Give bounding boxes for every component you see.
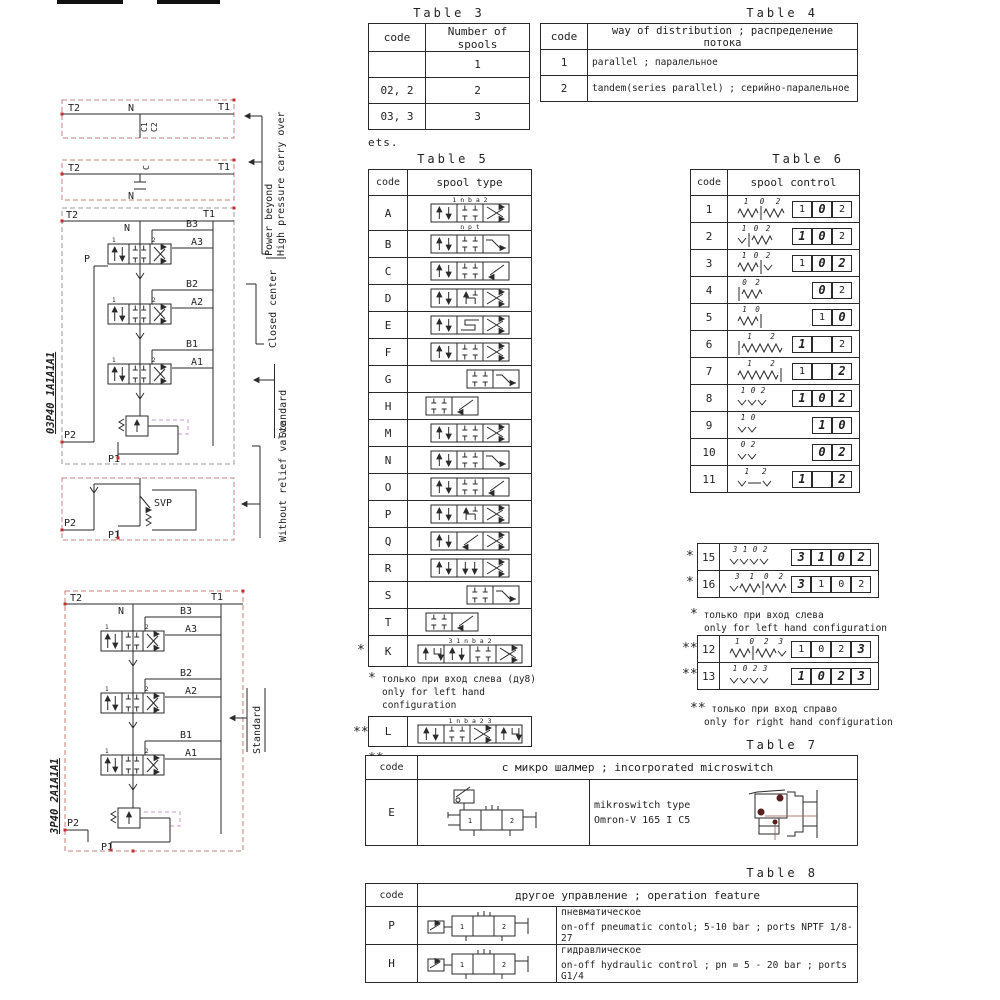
asterisk-marker: * <box>686 575 694 590</box>
position-box: 0 <box>832 309 852 326</box>
spool-control-cell: 102102 <box>728 196 860 223</box>
spool-type-symbol <box>465 367 521 391</box>
table6-row: 1310231023 <box>698 663 879 690</box>
port-label-a: A1 <box>185 748 197 759</box>
cell-code: H <box>366 945 418 983</box>
label-high-pressure-carry-over: High pressure carry over <box>276 112 287 257</box>
port-label-n: N <box>124 223 130 234</box>
cell-code: K <box>369 636 408 667</box>
position-box: 1 <box>792 471 812 488</box>
spool-symbol-cell <box>408 339 532 366</box>
table5-row: R <box>369 555 532 582</box>
position-box: 3 <box>851 668 871 685</box>
table-row: 1 parallel ; паралельное <box>541 50 858 76</box>
control-position-label: 2 <box>764 637 769 646</box>
position-boxes: 02 <box>793 444 852 461</box>
operation-ru: пневматическое <box>561 907 853 918</box>
spool-control-cell: 1010 <box>728 412 860 439</box>
spool-symbol-cell <box>408 393 532 420</box>
control-position-label: 0 <box>754 224 759 233</box>
control-position-label: 2 <box>766 224 771 233</box>
table6-extra-block: 12102310231310231023**** <box>697 635 863 690</box>
cell-code: B <box>369 231 408 258</box>
note-ru: только при вход слева (ду8) <box>382 674 536 685</box>
table7-header-desc: с микро шалмер ; incorporated microswitc… <box>418 756 858 780</box>
position-boxes: 1023 <box>791 668 871 685</box>
asterisk-marker: * <box>690 607 698 622</box>
spool-control-symbol: 102 <box>735 223 789 249</box>
table8: code другое управление ; operation featu… <box>365 883 858 983</box>
position-boxes: 02 <box>793 282 852 299</box>
spool-symbol-cell <box>408 285 532 312</box>
control-position-label: 0 <box>754 251 759 260</box>
spool-type-symbol <box>429 286 511 310</box>
catalog-page: T2T1NC1C2T2T1NCT2T1NB3A312B2A212B1A112PP… <box>0 0 1000 1000</box>
table5-header-code: code <box>369 170 408 196</box>
port-label-b: B2 <box>180 668 192 679</box>
spool-control-cell: 1212 <box>728 466 860 493</box>
spool-control-cell: 1010 <box>728 304 860 331</box>
valve-section-label: 1 <box>112 297 116 304</box>
spool-control-cell: 102102 <box>728 385 860 412</box>
spool-control-cell: 31023102 <box>720 544 879 571</box>
valve-cell-label: 2 <box>502 923 506 931</box>
spool-control-symbol: 10 <box>735 304 789 330</box>
cell-code: T <box>369 609 408 636</box>
spool-symbol-cell <box>408 231 532 258</box>
position-boxes: 3102 <box>791 576 871 593</box>
cell-code: 11 <box>691 466 728 493</box>
operation-description: гидравлическое on-off hydraulic control … <box>557 945 858 983</box>
control-position-label: 1 <box>747 332 752 341</box>
valve-section-label: 1 <box>105 748 109 755</box>
cell-value: 3 <box>426 104 530 130</box>
position-box: 0 <box>812 444 832 461</box>
position-boxes: 12 <box>792 336 852 353</box>
table6-header-spool-control: spool control <box>728 170 860 196</box>
cell-code: 9 <box>691 412 728 439</box>
table7: code с микро шалмер ; incorporated micro… <box>365 755 858 846</box>
port-label-c2: C2 <box>150 122 159 132</box>
position-box: 1 <box>792 363 812 380</box>
table4: code way of distribution ; распределение… <box>540 23 858 102</box>
control-position-label: 1 <box>741 413 746 422</box>
table5-row: S <box>369 582 532 609</box>
spool-port-labels: 1 n b a 2 <box>452 196 487 204</box>
table4-container: Table 4 code way of distribution ; распр… <box>540 6 858 102</box>
table5-row: D <box>369 285 532 312</box>
operation-en: on-off pneumatic contol; 5-10 bar ; port… <box>561 922 853 944</box>
spool-control-symbol: 02 <box>735 277 789 303</box>
position-box: 2 <box>832 336 852 353</box>
position-box: 2 <box>832 201 852 218</box>
port-label-t2: T2 <box>70 593 82 604</box>
control-position-label: 1 <box>742 224 747 233</box>
control-position-label: 1 <box>744 197 749 206</box>
position-box: 0 <box>812 255 832 272</box>
table5-row: T <box>369 609 532 636</box>
spool-control-cell: 0202 <box>728 277 860 304</box>
spool-type-symbol <box>424 394 480 418</box>
spool-type-symbol <box>429 556 511 580</box>
spool-type-symbol <box>465 583 521 607</box>
port-label-a: A3 <box>191 237 203 248</box>
microswitch-drawing <box>747 782 853 844</box>
position-box: 1 <box>812 309 832 326</box>
table5-row: P <box>369 501 532 528</box>
port-label-a: A2 <box>185 686 197 697</box>
spool-port-labels: n p t <box>460 223 480 230</box>
position-box: 1 <box>792 228 812 245</box>
control-position-label: 1 <box>743 545 748 554</box>
cell-code: E <box>366 780 418 846</box>
table5-container: Table 5 code spool type A1 n b a 2n p tB… <box>368 152 538 805</box>
position-box: 0 <box>831 576 851 593</box>
control-position-label: 2 <box>770 332 775 341</box>
microswitch-description: mikroswitch type Omron-V 165 I C5 <box>590 780 858 846</box>
cell-code: H <box>369 393 408 420</box>
table6-row: 3102102 <box>691 250 860 277</box>
position-box: 1 <box>811 576 831 593</box>
table6-row: 2102102 <box>691 223 860 250</box>
spool-symbol-cell <box>408 528 532 555</box>
spool-control-cell: 102102 <box>728 223 860 250</box>
spool-control-symbol: 102 <box>735 196 789 222</box>
table5-row: C <box>369 258 532 285</box>
spool-control-symbol: 1023 <box>727 663 781 689</box>
port-label-t1: T1 <box>211 592 223 603</box>
position-box: 0 <box>812 390 832 407</box>
spool-symbol-cell <box>408 366 532 393</box>
table3-footnote: ets. <box>368 136 530 149</box>
spool-control-symbol: 102 <box>735 385 789 411</box>
cell-code: G <box>369 366 408 393</box>
label-power-beyond: Power beyond <box>264 184 275 256</box>
cell-code: 1 <box>541 50 588 76</box>
position-box: 0 <box>811 668 831 685</box>
control-position-label: 0 <box>753 545 758 554</box>
table-row: 03, 3 3 <box>369 104 530 130</box>
spool-type-symbol <box>429 475 511 499</box>
table6-row: 40202 <box>691 277 860 304</box>
position-boxes: 3102 <box>791 549 871 566</box>
position-box <box>812 363 832 380</box>
port-label-a: A1 <box>191 357 203 368</box>
valve-cell-label: 1 <box>467 817 471 825</box>
position-box: 2 <box>832 255 852 272</box>
asterisk-marker: ** <box>682 667 698 682</box>
cell-code: 16 <box>698 571 720 598</box>
control-position-label: 0 <box>741 440 746 449</box>
position-box: 0 <box>832 417 852 434</box>
table-row: 02, 2 2 <box>369 78 530 104</box>
spool-symbol-cell <box>408 420 532 447</box>
asterisk-marker: ** <box>690 701 706 716</box>
cell-code: 5 <box>691 304 728 331</box>
spool-symbol-cell <box>408 582 532 609</box>
note-en: only for left hand configuration <box>368 686 538 712</box>
table4-title: Table 4 <box>540 6 858 20</box>
valve-section-label: 2 <box>145 624 149 631</box>
control-position-label: 3 <box>778 637 784 646</box>
spool-symbol-cell <box>408 312 532 339</box>
position-box: 2 <box>832 228 852 245</box>
control-position-label: 2 <box>753 664 758 673</box>
position-box: 0 <box>811 641 831 658</box>
table3: code Number of spools 1 02, 2 2 03, 3 3 <box>368 23 530 130</box>
table6-row: 1210231023 <box>698 636 879 663</box>
spool-symbol-cell <box>408 447 532 474</box>
port-label-p2: P2 <box>64 430 76 441</box>
spool-symbol-cell <box>408 474 532 501</box>
port-label-n: N <box>128 103 134 114</box>
table5-note-left: * только при вход слева (ду8) only for l… <box>368 672 538 712</box>
position-box: 2 <box>832 363 852 380</box>
operation-ru: гидравлическое <box>561 945 853 956</box>
table5-row: O <box>369 474 532 501</box>
position-box: 2 <box>831 641 851 658</box>
spool-control-symbol: 12 <box>735 466 789 492</box>
table4-header-way: way of distribution ; распределение пото… <box>588 24 858 50</box>
control-position-label: 0 <box>764 572 769 581</box>
valve-cell-label: 1 <box>460 961 464 969</box>
table3-container: Table 3 code Number of spools 1 02, 2 2 … <box>368 6 530 149</box>
port-label-c1: C1 <box>140 122 149 132</box>
port-label-b: B3 <box>180 606 192 617</box>
position-boxes: 1023 <box>791 641 871 658</box>
spool-control-cell: 1212 <box>728 331 860 358</box>
table5-row: F <box>369 339 532 366</box>
cell-code: 02, 2 <box>369 78 426 104</box>
position-boxes: 102 <box>792 390 852 407</box>
port-label-a: A3 <box>185 624 197 635</box>
cell-code: P <box>366 907 418 945</box>
label-closed-center: Closed center <box>268 270 279 348</box>
control-position-label: 3 <box>762 664 768 673</box>
position-box: 2 <box>851 576 871 593</box>
control-position-label: 3 <box>734 572 740 581</box>
spool-type-symbol <box>429 313 511 337</box>
table7-title: Table 7 <box>365 738 858 752</box>
cell-code: 13 <box>698 663 720 690</box>
position-boxes: 102 <box>792 228 852 245</box>
position-box: 3 <box>851 641 871 658</box>
note-ru: только при вход справо <box>711 704 837 715</box>
port-label-b: B3 <box>186 219 198 230</box>
hydraulic-valve-symbol: 12 <box>418 945 557 983</box>
cell-code: 6 <box>691 331 728 358</box>
port-label-t1: T1 <box>218 162 230 173</box>
operation-description: пневматическое on-off pneumatic contol; … <box>557 907 858 945</box>
table5-row: G <box>369 366 532 393</box>
control-position-label: 2 <box>763 545 768 554</box>
cell-code: 10 <box>691 439 728 466</box>
cropped-logo-bar <box>57 0 123 4</box>
table6: code spool control 110210221021023102102… <box>690 169 860 493</box>
valve-section-label: 2 <box>152 357 156 364</box>
table6-extra: 12102310231310231023 <box>697 635 879 690</box>
table6-row: 111212 <box>691 466 860 493</box>
table5-header-spool-type: spool type <box>408 170 532 196</box>
valve-cell-label: 1 <box>460 923 464 931</box>
table8-title: Table 8 <box>365 866 858 880</box>
cell-code <box>369 52 426 78</box>
cell-code: C <box>369 258 408 285</box>
spool-control-symbol: 1023 <box>727 636 791 662</box>
table-row: 2 tandem(series parallel) ; серийно-пара… <box>541 76 858 102</box>
asterisk-marker: * <box>368 671 376 686</box>
port-label-p2: P2 <box>67 818 79 829</box>
spool-type-symbol: 3 1 n b a 2 <box>416 637 524 666</box>
spool-symbol-cell <box>408 555 532 582</box>
table6-row: 61212 <box>691 331 860 358</box>
table5-row: B <box>369 231 532 258</box>
cell-code: 15 <box>698 544 720 571</box>
cell-code: 12 <box>698 636 720 663</box>
table6-title: Table 6 <box>690 152 862 166</box>
spool-type-symbol <box>429 340 511 364</box>
table5: code spool type A1 n b a 2n p tBCDEFGHMN… <box>368 169 532 667</box>
table6-row: 91010 <box>691 412 860 439</box>
valve-section-label: 1 <box>112 357 116 364</box>
table6-note: ** только при вход справоonly for right … <box>690 702 893 729</box>
position-boxes: 102 <box>792 255 852 272</box>
spool-type-symbol <box>429 448 511 472</box>
spool-control-symbol: 12 <box>735 358 789 384</box>
control-position-label: 1 <box>741 386 746 395</box>
control-position-label: 1 <box>735 637 740 646</box>
cell-value: 2 <box>426 78 530 104</box>
control-position-label: 1 <box>750 572 755 581</box>
spool-control-cell: 102102 <box>728 250 860 277</box>
control-position-label: 1 <box>742 251 747 260</box>
pneumatic-valve-symbol: 12 <box>418 907 557 945</box>
table6-header-code: code <box>691 170 728 196</box>
model-number-bottom: 3P40 2A1A1A1 <box>49 758 61 835</box>
control-position-label: 0 <box>751 413 756 422</box>
port-label-p: P <box>84 254 90 265</box>
cell-code: M <box>369 420 408 447</box>
spool-type-symbol <box>424 610 480 634</box>
table4-header-code: code <box>541 24 588 50</box>
table6-container: Table 6 code spool control 1102102210210… <box>690 152 862 493</box>
position-box: 1 <box>791 668 811 685</box>
position-box: 2 <box>851 549 871 566</box>
cell-code: 3 <box>691 250 728 277</box>
table6-note: * только при вход слеваonly for left han… <box>690 608 887 635</box>
table-row: P 12 пневматическое on-off pneumatic con… <box>366 907 858 945</box>
spool-control-symbol: 3102 <box>727 544 781 570</box>
cell-code: 03, 3 <box>369 104 426 130</box>
position-boxes: 12 <box>792 363 852 380</box>
control-position-label: 2 <box>762 467 767 476</box>
position-boxes: 10 <box>812 309 852 326</box>
table3-title: Table 3 <box>368 6 530 20</box>
spool-control-symbol: 102 <box>735 250 789 276</box>
control-position-label: 2 <box>755 278 760 287</box>
asterisk-marker: * <box>686 549 694 564</box>
position-box: 2 <box>831 668 851 685</box>
port-label-b: B2 <box>186 279 198 290</box>
cell-code: N <box>369 447 408 474</box>
spool-control-cell: 1212 <box>728 358 860 385</box>
position-box: 1 <box>792 255 812 272</box>
position-boxes: 10 <box>812 417 852 434</box>
spool-symbol-cell <box>408 609 532 636</box>
cell-value: 1 <box>426 52 530 78</box>
control-position-label: 1 <box>742 305 747 314</box>
cell-code: O <box>369 474 408 501</box>
control-position-label: 0 <box>760 197 765 206</box>
port-label-svp: SVP <box>154 498 172 509</box>
spool-type-symbol <box>429 529 511 553</box>
port-label-b: B1 <box>180 730 192 741</box>
position-box: 2 <box>832 471 852 488</box>
table6-row: 100202 <box>691 439 860 466</box>
position-box: 0 <box>812 282 832 299</box>
spool-type-symbol: 1 n b a 2n p t <box>429 196 511 230</box>
spool-port-labels: 1 n b a 2 3 <box>448 717 491 725</box>
position-box: 1 <box>792 390 812 407</box>
table8-header-code: code <box>366 884 418 907</box>
valve-cell-label: 2 <box>509 817 513 825</box>
spool-port-labels: 3 1 n b a 2 <box>448 637 491 645</box>
spool-type-symbol <box>429 232 511 256</box>
spool-control-symbol: 12 <box>735 331 789 357</box>
note-en: only for left hand configuration <box>690 622 887 635</box>
asterisk-marker: * <box>357 643 365 658</box>
cell-code: E <box>369 312 408 339</box>
spool-control-symbol: 10 <box>735 412 789 438</box>
cell-value: tandem(series parallel) ; серийно-парале… <box>588 76 858 102</box>
cell-code: F <box>369 339 408 366</box>
valve-section-label: 1 <box>105 686 109 693</box>
table3-header-spools: Number of spools <box>426 24 530 52</box>
control-position-label: 0 <box>755 305 760 314</box>
table6-row: 1531023102 <box>698 544 879 571</box>
table3-header-code: code <box>369 24 426 52</box>
port-label-t2: T2 <box>68 163 80 174</box>
spool-control-symbol: 3102 <box>727 571 791 597</box>
valve-section-label: 2 <box>145 686 149 693</box>
control-position-label: 3 <box>732 545 738 554</box>
position-box: 2 <box>832 390 852 407</box>
control-position-label: 2 <box>751 440 756 449</box>
position-box: 3 <box>791 549 811 566</box>
cell-code: 2 <box>691 223 728 250</box>
table7-header-code: code <box>366 756 418 780</box>
position-box: 1 <box>791 641 811 658</box>
spool-symbol-cell <box>408 501 532 528</box>
spool-control-cell: 31023102 <box>720 571 879 598</box>
cropped-logo-bar <box>157 0 220 4</box>
spool-control-cell: 10231023 <box>720 636 879 663</box>
note-en: only for right hand configuration <box>690 716 893 729</box>
table-row: H 12 гидравлическое on-off hydraulic con… <box>366 945 858 983</box>
hydraulic-circuit-diagrams: T2T1NC1C2T2T1NCT2T1NB3A312B2A212B1A112PP… <box>28 86 328 876</box>
table5-row: H <box>369 393 532 420</box>
cell-code: Q <box>369 528 408 555</box>
control-position-label: 0 <box>751 386 756 395</box>
table6-extra: 15310231021631023102 <box>697 543 879 598</box>
table8-header-desc: другое управление ; operation feature <box>418 884 858 907</box>
control-position-label: 1 <box>733 664 738 673</box>
control-position-label: 0 <box>750 637 755 646</box>
table5-row: N <box>369 447 532 474</box>
table6-row: 71212 <box>691 358 860 385</box>
port-label-a: A2 <box>191 297 203 308</box>
control-position-label: 2 <box>766 251 771 260</box>
